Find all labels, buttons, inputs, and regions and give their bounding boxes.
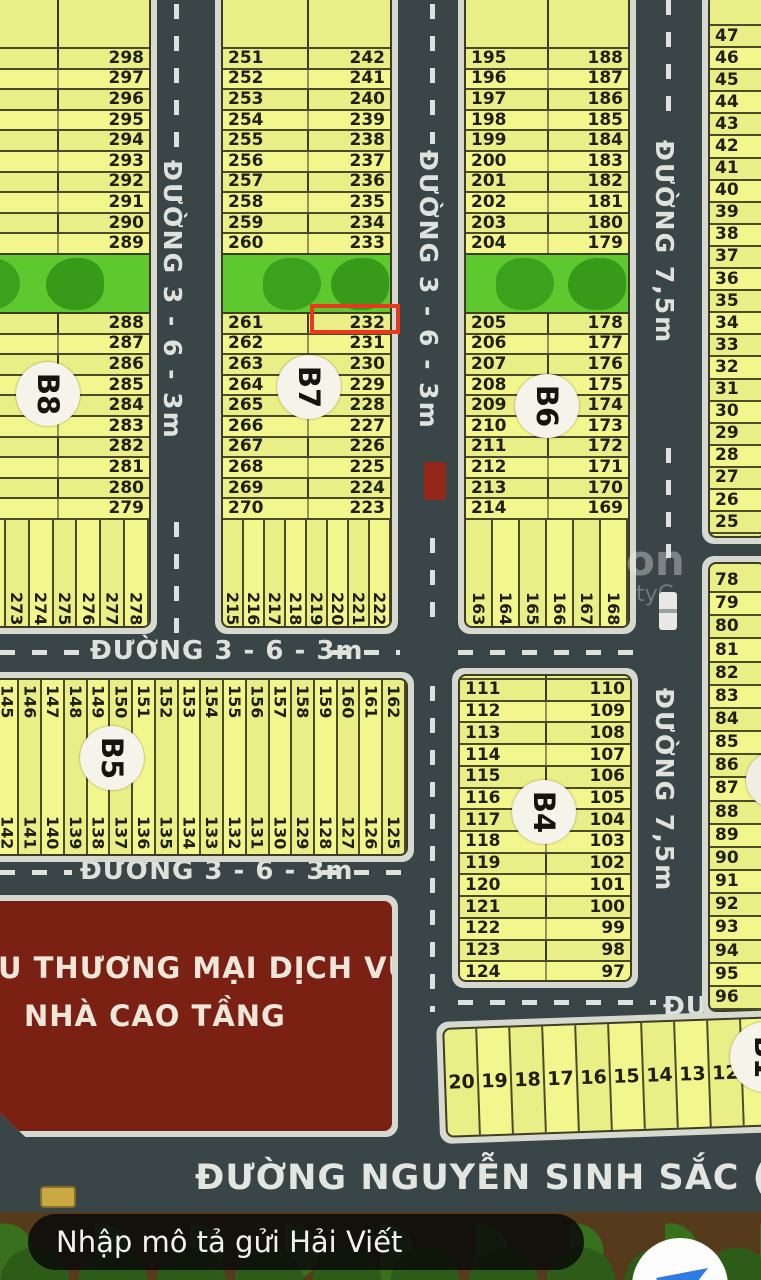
plot-number: 28 [710,446,761,468]
plot-strip: 140 [42,680,65,854]
plot-number: 291 [0,193,149,214]
plot-number: 180 [547,214,628,235]
plot-number: 46 [710,48,761,70]
plot-number: 289 [0,234,149,255]
plot-strip: 129 [292,680,315,854]
plot-number: 111 [460,680,545,702]
plot-strip: 135 [156,680,179,854]
b7-strips: 215216217218219220221222 [223,520,390,628]
plot-number: 141 [20,816,39,849]
block-label-text: B1 [748,1036,761,1078]
plot-number: 280 [0,479,149,500]
plot-strip: 131 [247,680,270,854]
street-label-h1: ĐƯỜNG 3 - 6 - 3m [90,636,364,666]
plot-strip: 15 [609,1023,646,1130]
street-label-bottom: ĐƯỜNG NGUYỄN SINH SẮC ( 9 - 15 [195,1158,761,1198]
road-centerline [430,686,435,1012]
plot-strip: 277 [101,520,125,628]
plot-number: 39 [710,203,761,225]
road-centerline [430,538,435,626]
plot-number: 185 [547,111,628,132]
block-b6-area: 195196197198199200201202203204 188187186… [464,0,630,628]
plot-number: 267 [223,438,307,459]
plot-number: 290 [0,214,149,235]
plot-strip: 133 [201,680,224,854]
plot-number: 216 [244,592,263,625]
plot-number: 283 [0,417,149,438]
b8-rows-top: 298297296295294293292291290289 [0,47,149,255]
plot-number: 108 [545,723,630,745]
plot-number: 233 [307,234,391,255]
plot-number: 200 [466,152,547,173]
road-centerline [322,870,418,875]
plot-number: 224 [307,479,391,500]
road-centerline [0,650,84,655]
plot-number: 34 [710,313,761,335]
block-east-top: 4746454443424140393837363534333231302928… [702,0,761,544]
road-centerline [458,1000,656,1005]
b7-rows-top-right: 242241240239238237236235234233 [307,47,391,255]
tree-icon [496,258,554,310]
plot-number: 168 [604,592,623,625]
plot-number: 217 [265,592,284,625]
plot-number: 179 [547,234,628,255]
road-centerline [332,650,400,655]
road-centerline [458,650,636,655]
plot-number: 201 [466,173,547,194]
commercial-block: U THƯƠNG MẠI DỊCH VỤ NHÀ CAO TẦNG [0,895,398,1137]
block-b5: 1441451461471481491501511521531541551561… [0,672,414,862]
plot-strip: 219 [307,520,328,628]
plot-number: 133 [202,816,221,849]
tree-icon [46,258,104,310]
plot-number: 255 [223,131,307,152]
tree-icon [0,258,20,310]
plot-number: 273 [7,592,26,625]
plot-number: 13 [679,1063,706,1086]
plot-strip: 127 [338,680,361,854]
plot-strip: 163 [466,520,493,628]
plot-strip: 166 [547,520,574,628]
road-centerline [430,4,435,144]
plot-number: 82 [710,663,761,686]
road-marker [424,462,446,500]
block-east-top-area: 4746454443424140393837363534333231302928… [708,0,761,538]
b6-rows-top-right: 188187186185184183182181180179 [547,47,628,255]
plot-strip: 14 [642,1022,679,1129]
plot-number: 114 [460,745,545,767]
plot-number: 139 [66,816,85,849]
plot-number: 134 [179,816,198,849]
plot-number: 107 [545,745,630,767]
plot-number: 276 [79,592,98,625]
plot-number: 20 [448,1071,475,1094]
plot-number: 142 [0,816,17,849]
plot-strip: 17 [543,1025,580,1132]
commercial-label-line1: U THƯƠNG MẠI DỊCH VỤ [0,951,392,985]
block-label-text: B4 [527,791,561,833]
plot-number: 231 [307,335,391,356]
plot-strip: 130 [270,680,293,854]
park-strip [0,253,149,314]
plot-number: 164 [496,592,515,625]
plot-number: 130 [270,816,289,849]
block-b1: 20191817161514131211 [436,1010,761,1144]
plot-number: 32 [710,357,761,379]
plot-number: 33 [710,335,761,357]
street-label-right: ĐƯỜNG 7,5m [650,140,679,440]
plot-strip: 20 [444,1029,481,1136]
b5-strips-bottom: 1431421411401391381371361351341331321311… [0,680,406,854]
plot-strip: 18 [510,1026,547,1133]
plot-number: 203 [466,214,547,235]
highlighted-plot-232-box [310,304,400,334]
plot-number: 124 [460,962,545,982]
plot-number: 27 [710,468,761,490]
plot-number: 184 [547,131,628,152]
plot-strip: 165 [520,520,547,628]
plot-number: 44 [710,92,761,114]
plot-number: 275 [55,592,74,625]
tree-icon [263,258,321,310]
plot-number: 166 [550,592,569,625]
plot-number: 212 [466,458,547,479]
plot-number: 269 [223,479,307,500]
plot-number: 170 [547,479,628,500]
plot-number: 297 [0,70,149,91]
plot-strip: 164 [493,520,520,628]
plot-strip: 217 [265,520,286,628]
plot-number: 211 [466,438,547,459]
plot-strip: 218 [286,520,307,628]
plot-number: 30 [710,402,761,424]
plot-number: 26 [710,490,761,512]
plot-number: 94 [710,941,761,964]
watermark-fragment: on [626,536,685,585]
plot-number: 298 [0,49,149,70]
b7-rows-mid-left: 261262263264265266267268269270 [223,314,307,520]
plot-number: 188 [547,49,628,70]
plot-strip: 134 [179,680,202,854]
b6-rows-top-left: 195196197198199200201202203204 [466,47,547,255]
plot-number: 270 [223,499,307,520]
commercial-label-line2: NHÀ CAO TẦNG [24,999,286,1033]
plot-number: 186 [547,90,628,111]
commercial-block-area: U THƯƠNG MẠI DỊCH VỤ NHÀ CAO TẦNG [0,901,392,1131]
b7-rows-top-left: 251252253254255256257258259260 [223,47,307,255]
plot-number: 239 [307,111,391,132]
plot-number: 91 [710,871,761,894]
plot-strip: 167 [574,520,601,628]
plot-strip: 132 [224,680,247,854]
plot-number: 282 [0,438,149,459]
plot-number: 129 [293,816,312,849]
plot-number: 187 [547,70,628,91]
block-b6: 195196197198199200201202203204 188187186… [458,0,636,634]
plot-number: 100 [545,897,630,919]
plot-number: 90 [710,848,761,871]
b8-rows-mid: 288287286285284283282281280279 [0,314,149,520]
block-label-b4: B4 [512,780,576,844]
plot-number: 42 [710,136,761,158]
plot-number: 261 [223,314,307,335]
block-label-text: B5 [95,737,129,779]
plot-strip: 273 [6,520,30,628]
block-label-b7: B7 [277,355,341,419]
plot-strip: 278 [125,520,149,628]
plot-strip: 141 [19,680,42,854]
street-label-right-2: ĐƯỜNG 7,5m [650,688,679,988]
plot-number: 237 [307,152,391,173]
plot-number: 119 [460,854,545,876]
plot-number: 29 [710,424,761,446]
plot-number: 121 [460,897,545,919]
plot-number: 81 [710,639,761,662]
plot-number: 223 [307,499,391,520]
plot-number: 214 [466,499,547,520]
plot-number: 84 [710,709,761,732]
plot-number: 295 [0,111,149,132]
plot-number: 204 [466,234,547,255]
message-input[interactable]: Nhập mô tả gửi Hải Viết [28,1214,584,1270]
plot-number: 40 [710,181,761,203]
plot-number: 207 [466,355,547,376]
plot-number: 177 [547,335,628,356]
plot-number: 222 [370,592,389,625]
plot-number: 18 [514,1068,541,1091]
plot-number: 206 [466,335,547,356]
plot-number: 41 [710,159,761,181]
plot-number: 236 [307,173,391,194]
plot-number: 38 [710,225,761,247]
plot-map: 298297296295294293292291290289 288287286… [0,0,761,1280]
plot-number: 15 [613,1065,640,1088]
east-top-rows: 4746454443424140393837363534333231302928… [710,24,761,534]
plot-strip: 275 [54,520,78,628]
block-b1-area: 20191817161514131211 [442,1016,761,1138]
plot-number: 95 [710,964,761,987]
plot-number: 132 [225,816,244,849]
plot-number: 272 [0,592,2,625]
block-b8: 298297296295294293292291290289 288287286… [0,0,157,634]
plot-number: 241 [307,70,391,91]
plot-number: 89 [710,825,761,848]
block-label-b5: B5 [80,726,144,790]
plot-number: 225 [307,458,391,479]
plot-number: 262 [223,335,307,356]
plot-number: 278 [127,592,146,625]
plot-number: 92 [710,894,761,917]
road-centerline [0,870,72,875]
plot-number: 181 [547,193,628,214]
block-label-text: B6 [530,385,564,427]
plot-number: 120 [460,875,545,897]
plot-strip: 276 [77,520,101,628]
plot-number: 36 [710,269,761,291]
plot-number: 16 [580,1066,607,1089]
plot-number: 227 [307,417,391,438]
plot-number: 268 [223,458,307,479]
street-label-left: ĐƯỜNG 3 - 6 - 3m [158,160,187,520]
road-centerline [174,522,179,634]
plot-number: 127 [339,816,358,849]
tree-icon [331,258,389,310]
plot-number: 47 [710,26,761,48]
b8-strips: 271272273274275276277278 [0,520,149,628]
plot-number: 296 [0,90,149,111]
plot-number: 238 [307,131,391,152]
block-label-b8: B8 [16,362,80,426]
plot-number: 167 [577,592,596,625]
plot-number: 252 [223,70,307,91]
plot-number: 251 [223,49,307,70]
plot-number: 123 [460,941,545,963]
plot-number: 258 [223,193,307,214]
plot-number: 45 [710,70,761,92]
plot-number: 122 [460,919,545,941]
plot-number: 99 [545,919,630,941]
plot-number: 43 [710,114,761,136]
b1-strips: 20191817161514131211 [444,1018,761,1135]
plot-number: 226 [307,438,391,459]
tree-icon [568,258,626,310]
plot-strip: 128 [315,680,338,854]
road-centerline [666,0,671,122]
plot-strip: 215 [223,520,244,628]
plot-number: 128 [316,816,335,849]
plot-number: 79 [710,593,761,616]
plot-number: 257 [223,173,307,194]
plot-number: 135 [157,816,176,849]
send-button[interactable] [632,1238,728,1280]
plot-number: 195 [466,49,547,70]
plot-number: 19 [481,1070,508,1093]
plot-number: 287 [0,335,149,356]
plot-number: 293 [0,152,149,173]
plot-number: 221 [349,592,368,625]
plot-number: 125 [384,816,403,849]
b6-strips: 163164165166167168 [466,520,628,628]
plot-number: 198 [466,111,547,132]
plot-number: 37 [710,247,761,269]
block-label-b6: B6 [515,374,579,438]
plot-number: 219 [307,592,326,625]
plot-number: 131 [248,816,267,849]
plot-number: 98 [545,941,630,963]
plot-number: 172 [547,438,628,459]
plot-number: 205 [466,314,547,335]
plot-number: 169 [547,499,628,520]
road-centerline [174,4,179,152]
plot-number: 260 [223,234,307,255]
plot-number: 183 [547,152,628,173]
plot-strip: 222 [370,520,391,628]
block-label-text: B8 [31,373,65,415]
plot-number: 35 [710,291,761,313]
plot-number: 96 [710,987,761,1010]
plot-number: 196 [466,70,547,91]
plot-number: 234 [307,214,391,235]
plot-number: 93 [710,917,761,940]
plot-number: 97 [545,962,630,982]
plot-number: 242 [307,49,391,70]
plot-number: 165 [523,592,542,625]
plot-number: 25 [710,512,761,534]
plot-strip: 126 [360,680,383,854]
watermark-fragment: tyG [636,582,675,607]
plot-number: 254 [223,111,307,132]
plot-strip: 274 [30,520,54,628]
plot-number: 178 [547,314,628,335]
plot-number: 171 [547,458,628,479]
plot-number: 31 [710,380,761,402]
plot-number: 199 [466,131,547,152]
plot-number: 266 [223,417,307,438]
plot-number: 112 [460,702,545,724]
plot-number: 259 [223,214,307,235]
plot-number: 136 [134,816,153,849]
plot-number: 218 [286,592,305,625]
plot-strip: 168 [601,520,628,628]
plot-strip: 142 [0,680,19,854]
plot-strip: 220 [328,520,349,628]
plot-number: 80 [710,616,761,639]
plot-number: 235 [307,193,391,214]
plot-number: 110 [545,680,630,702]
plot-strip: 19 [477,1027,514,1134]
block-b8-area: 298297296295294293292291290289 288287286… [0,0,151,628]
plot-number: 88 [710,802,761,825]
plot-number: 126 [361,816,380,849]
plot-strip: 13 [675,1021,712,1128]
plot-number: 182 [547,173,628,194]
plot-number: 281 [0,458,149,479]
plot-number: 240 [307,90,391,111]
plot-number: 294 [0,131,149,152]
plot-number: 215 [223,592,242,625]
plot-number: 253 [223,90,307,111]
plot-number: 109 [545,702,630,724]
block-label-text: B7 [292,366,326,408]
plot-number: 197 [466,90,547,111]
plot-number: 102 [545,854,630,876]
plot-number: 256 [223,152,307,173]
plot-number: 140 [43,816,62,849]
plot-number: 274 [31,592,50,625]
plot-number: 288 [0,314,149,335]
plot-strip: 221 [349,520,370,628]
plot-number: 279 [0,499,149,520]
plot-number: 138 [89,816,108,849]
plot-number: 85 [710,732,761,755]
block-b5-area: 1441451461471481491501511521531541551561… [0,678,408,856]
plot-number: 101 [545,875,630,897]
plot-number: 17 [547,1067,574,1090]
plot-number: 83 [710,686,761,709]
plot-number: 78 [710,570,761,593]
plot-strip: 216 [244,520,265,628]
park-strip [466,253,628,314]
plot-number: 14 [646,1064,673,1087]
plot-strip: 125 [383,680,406,854]
plot-number: 202 [466,193,547,214]
plot-number: 137 [111,816,130,849]
plot-number: 277 [103,592,122,625]
plot-number: 220 [328,592,347,625]
legend-marker-icon [40,1186,76,1208]
plot-number: 213 [466,479,547,500]
plot-number: 176 [547,355,628,376]
